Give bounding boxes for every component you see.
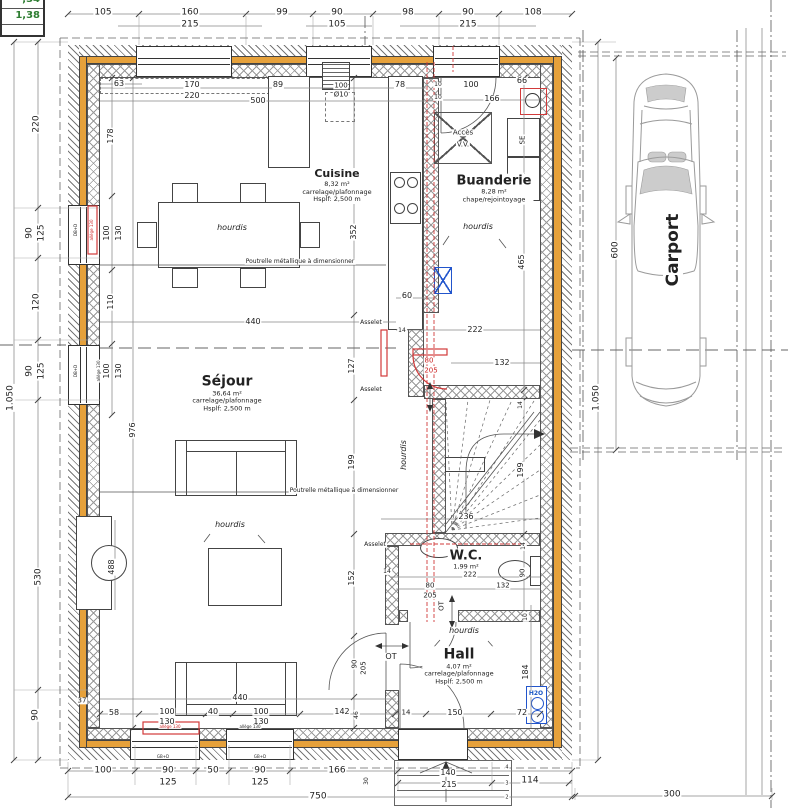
dim-label: 222	[462, 571, 477, 578]
dim-label: 125	[37, 223, 46, 242]
ot-label: OT	[384, 653, 397, 661]
dim-label: 105	[327, 20, 346, 29]
room-wc-text: 1,99 m²	[450, 564, 483, 572]
dim-label: 100	[462, 81, 479, 89]
partition-stair-left	[432, 399, 446, 533]
dim-label: 100	[158, 708, 175, 716]
dim-label: 90	[31, 708, 40, 721]
dim-label: 1.050	[6, 384, 15, 412]
stair-newel	[445, 457, 485, 472]
room-label-buanderie: Buanderie8,28 m²chape/rejointoyage	[455, 174, 534, 205]
dim-label: 10	[433, 95, 443, 101]
hourdis-label: hourdis	[216, 224, 248, 232]
dim-label: 199	[348, 453, 356, 470]
survey-value: ,34	[2, 0, 43, 9]
dim-label: 120	[32, 292, 41, 311]
room-wc-text: W.C.	[450, 549, 483, 564]
dim-label: 220	[32, 114, 41, 133]
dim-label: 440	[244, 318, 261, 326]
crawlspace-access-label: V.V.	[456, 141, 470, 148]
steel-beam-note: Poutrelle métallique à dimensionner	[245, 259, 356, 265]
partition-wc-hall-a	[399, 610, 408, 622]
dim-label: 98	[401, 8, 414, 17]
dim-label: 90	[351, 659, 358, 670]
dim-label: 130	[115, 362, 123, 379]
hourdis-label: hourdis	[400, 439, 408, 471]
dim-label: 142	[333, 708, 350, 716]
dim-label: 125	[250, 778, 269, 787]
dim-label: 236	[457, 513, 474, 521]
toilet-tank	[530, 556, 541, 586]
window-type-note: DB+D	[74, 223, 78, 237]
partition-stair-top	[424, 385, 540, 399]
dim-label: 58	[108, 709, 120, 717]
dim-label: 352	[350, 223, 358, 240]
sofa	[175, 662, 297, 716]
dim-label: 215	[440, 781, 457, 789]
dim-label: 90	[461, 8, 474, 17]
chair	[172, 268, 198, 288]
dim-label: 30	[364, 776, 370, 786]
dim-label: 50	[206, 766, 219, 775]
dim-label: 46	[354, 710, 360, 720]
chair	[172, 183, 198, 203]
room-buanderie-text: chape/rejointoyage	[457, 197, 532, 205]
dim-label: 99	[275, 8, 288, 17]
chair	[240, 268, 266, 288]
dim-label: 127	[348, 357, 356, 374]
chair	[137, 222, 157, 248]
sill-height-note: allège 130	[158, 725, 181, 729]
partition-sejour-hall-a	[385, 546, 399, 625]
room-label-cuisine: Cuisine8,32 m²carrelage/plafonnageHsplf:…	[300, 168, 373, 204]
dim-label: 530	[34, 567, 43, 586]
dim-label: 14	[397, 328, 407, 334]
dim-label: 40	[207, 708, 219, 716]
toilet-bowl	[498, 560, 532, 582]
dim-label: 150	[446, 709, 463, 717]
room-label-hall: Hall4,07 m²carrelage/plafonnageHsplf: 2,…	[422, 646, 495, 685]
survey-value: 1,38	[2, 9, 43, 25]
room-label-carport: Carport	[663, 212, 683, 289]
boiler-unit	[520, 88, 547, 115]
asselet-note: Asselet	[359, 387, 383, 393]
dim-label: 465	[518, 253, 526, 270]
chair	[300, 222, 320, 248]
dim-label: 14	[518, 400, 524, 410]
future-door-height: 205	[423, 367, 438, 374]
dim-label: 100	[103, 224, 111, 241]
dim-label: 10	[433, 82, 443, 88]
dim-label: 160	[180, 8, 199, 17]
dim-label: 132	[495, 582, 510, 589]
dim-label: 1.050	[592, 384, 601, 412]
dim-label: 222	[466, 326, 483, 334]
asselet-note: Asselet	[359, 320, 383, 326]
dim-label: 440	[231, 694, 248, 702]
crawlspace-access-label: Accès	[452, 129, 474, 136]
window-top-1	[136, 46, 232, 77]
dim-label: 220	[183, 92, 200, 100]
floor-plan: ,34 1,38	[0, 0, 788, 808]
dim-label: 215	[180, 20, 199, 29]
dim-label: 300	[662, 790, 681, 799]
dim-label: 100	[333, 82, 348, 89]
partition-sejour-hall-b	[385, 690, 399, 728]
dim-label: 60	[401, 292, 413, 300]
dim-label: 166	[327, 766, 346, 775]
boiler-flue	[525, 93, 540, 108]
dim-label: 152	[348, 569, 356, 586]
dim-label: 37	[77, 697, 88, 704]
dim-label: 90	[25, 364, 34, 377]
sill-height-note: allège 130	[90, 218, 94, 241]
hourdis-label: hourdis	[462, 223, 494, 231]
kitchen-counter-block	[268, 76, 310, 168]
future-door-width: 80	[424, 357, 435, 364]
dim-label: 600	[611, 240, 620, 259]
water-meter-label: H2O	[528, 691, 544, 697]
dim-label: 14	[521, 541, 527, 551]
partition-wc-top	[385, 533, 540, 546]
insulation-right	[553, 56, 562, 748]
dim-label: 72	[516, 709, 528, 717]
dim-label: 110	[107, 293, 115, 310]
rear-door	[433, 46, 500, 77]
dim-label: 10	[523, 612, 529, 622]
dim-label: 215	[458, 20, 477, 29]
hourdis-label: hourdis	[214, 521, 246, 529]
burner	[407, 203, 418, 214]
dim-label: 90	[25, 226, 34, 239]
dim-label: 140	[439, 769, 456, 777]
dim-label: 166	[483, 95, 500, 103]
steel-beam-note: Poutrelle métallique à dimensionner	[289, 488, 400, 494]
dim-label: 63	[113, 80, 125, 88]
room-label-sejour: Séjour36,64 m²carrelage/plafonnageHsplf:…	[190, 373, 263, 412]
dim-label: 205	[360, 660, 367, 675]
asselet-note: Asselet	[363, 542, 387, 548]
room-carport-text: Carport	[663, 214, 683, 287]
sill-height-note: allège 130	[238, 725, 261, 729]
room-sejour-text: Séjour	[192, 373, 261, 390]
dim-label: 80	[425, 582, 436, 589]
dim-label: 14	[382, 569, 392, 575]
window-type-note: GB+D	[156, 755, 170, 759]
dim-label: 90	[161, 766, 174, 775]
dim-label: 488	[108, 558, 116, 575]
dim-label: 100	[252, 708, 269, 716]
dim-label: 976	[129, 421, 137, 438]
dim-label: 100	[103, 362, 111, 379]
hob	[390, 172, 421, 224]
dim-label: 90	[519, 568, 526, 579]
burner	[394, 177, 405, 188]
dim-label: 125	[158, 778, 177, 787]
burner	[394, 203, 405, 214]
dim-label: Ø10	[333, 91, 349, 98]
dim-label: 66	[516, 77, 528, 85]
coffee-table	[208, 548, 282, 606]
front-door-opening	[398, 729, 468, 760]
dim-label: 114	[520, 776, 539, 785]
hourdis-label: hourdis	[448, 627, 480, 635]
masonry-right	[540, 64, 553, 728]
dim-label: 90	[330, 8, 343, 17]
dim-label: 3	[504, 781, 509, 786]
duct-shaft	[434, 267, 452, 294]
dim-label: 500	[249, 97, 266, 105]
dim-label: 184	[522, 663, 530, 680]
dim-label: 14	[401, 709, 412, 716]
room-label-wc: W.C.1,99 m²	[448, 549, 485, 572]
dim-label: 132	[493, 359, 510, 367]
sofa	[175, 440, 297, 496]
dim-label: 90	[253, 766, 266, 775]
dim-label: 170	[183, 81, 200, 89]
dim-label: 125	[37, 361, 46, 380]
crawlspace-access-hatch	[434, 112, 492, 164]
chair	[240, 183, 266, 203]
dim-label: 100	[93, 766, 112, 775]
room-hall-text: Hall	[424, 646, 493, 663]
window-type-note: GB+D	[253, 755, 267, 759]
wall-outer-right	[562, 45, 572, 760]
room-hall-text: Hsplf: 2,500 m	[424, 678, 493, 686]
dryer-label: SE	[519, 135, 526, 146]
survey-table: ,34 1,38	[0, 0, 45, 37]
dim-label: 105	[93, 8, 112, 17]
room-cuisine-text: Hsplf: 2,500 m	[302, 196, 371, 204]
sill-height-note: allège 130	[97, 359, 101, 382]
dim-label: 78	[394, 81, 406, 89]
ot-label: OT	[438, 600, 445, 612]
dim-label: 2	[504, 795, 509, 800]
dim-label: 130	[115, 224, 123, 241]
dim-label: 178	[107, 127, 115, 144]
dim-label: 4	[504, 765, 509, 770]
dim-label: 108	[523, 8, 542, 17]
window-type-note: DB+D	[74, 364, 78, 378]
dim-label: 205	[422, 592, 437, 599]
room-buanderie-text: Buanderie	[457, 174, 532, 189]
dim-label: 750	[308, 792, 327, 801]
room-sejour-text: Hsplf: 2,500 m	[192, 405, 261, 413]
dim-label: 199	[517, 461, 525, 478]
dim-label: 89	[272, 81, 284, 89]
burner	[407, 177, 418, 188]
